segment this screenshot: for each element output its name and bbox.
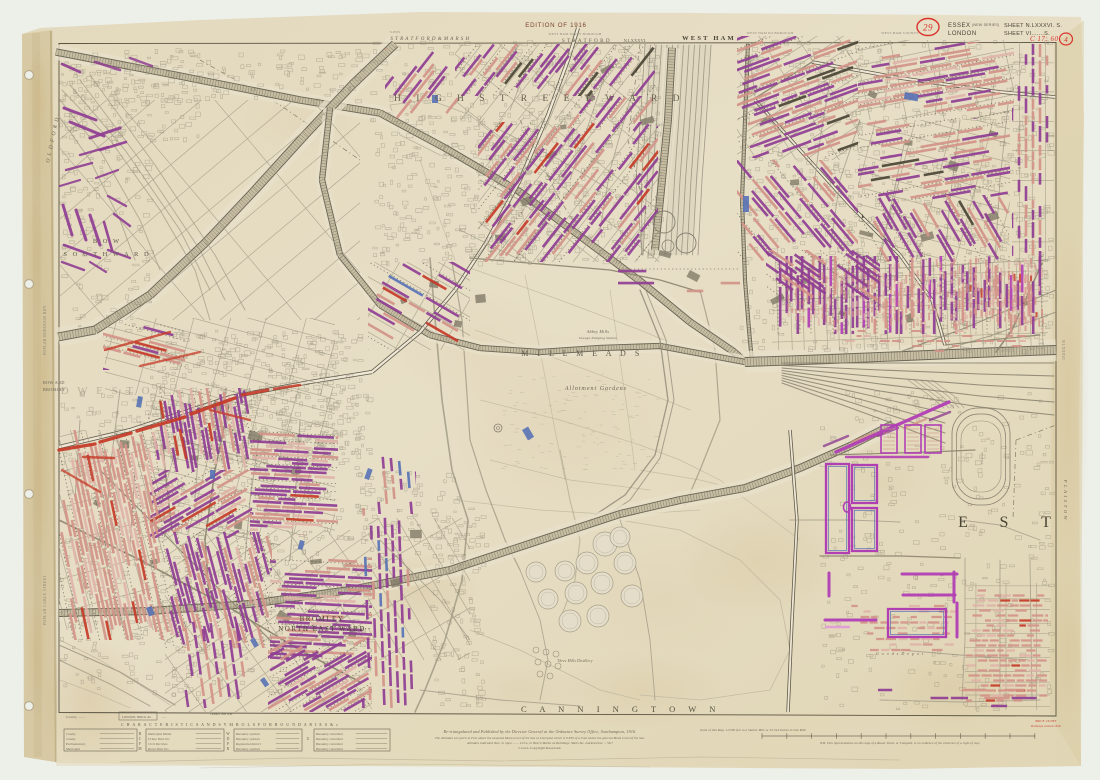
svg-text:Allotment Gardens: Allotment Gardens — [564, 386, 627, 392]
svg-text:PRICE 1/6 NET: PRICE 1/6 NET — [1036, 719, 1057, 723]
svg-text:Boundary coincident: Boundary coincident — [316, 732, 343, 736]
svg-text:S O U T H W A R D: S O U T H W A R D — [63, 251, 150, 258]
svg-text:Rural Districts: Rural Districts — [147, 747, 169, 751]
svg-text:Three Mills Distillery: Three Mills Distillery — [557, 659, 593, 663]
svg-text:Railways revised 1916: Railways revised 1916 — [1031, 724, 1061, 728]
svg-text:WEST HAM COUNTY: WEST HAM COUNTY — [881, 31, 919, 35]
svg-text:P L A I S T O W: P L A I S T O W — [1063, 479, 1068, 521]
svg-text:Civil Parishes: Civil Parishes — [148, 742, 168, 746]
svg-text:POPLAR CABLE STREET: POPLAR CABLE STREET — [43, 575, 47, 625]
svg-text:N.LXXXVI.: N.LXXXVI. — [624, 38, 647, 43]
svg-text:Boundary coincident: Boundary coincident — [316, 737, 343, 741]
svg-text:EDITION OF 1916: EDITION OF 1916 — [525, 22, 586, 29]
svg-text:D W E S T O N: D W E S T O N — [61, 385, 169, 397]
svg-text:B O W: B O W — [93, 238, 121, 245]
svg-text:29: 29 — [923, 23, 933, 33]
svg-text:S T R A T F O R D: S T R A T F O R D — [562, 38, 610, 44]
svg-text:County .......: County ....... — [66, 715, 86, 719]
svg-text:....: .... — [162, 715, 166, 719]
svg-text:Municipal Wards: Municipal Wards — [147, 732, 172, 736]
svg-text:S: S — [1000, 514, 1009, 531]
svg-text:NORTH EAST WARD: NORTH EAST WARD — [278, 625, 366, 633]
svg-text:H I G H S T R E E T W A R: H I G H S T R E E T W A R D — [394, 94, 686, 104]
svg-text:WEST HAM PARLY BOROUGH: WEST HAM PARLY BOROUGH — [548, 32, 602, 36]
svg-text:(NEW SERIES): (NEW SERIES) — [972, 23, 999, 27]
svg-text:Boundary symbols: Boundary symbols — [236, 747, 261, 751]
svg-text:M I L L M E A D S: M I L L M E A D S — [521, 349, 643, 358]
svg-text:Regimental district: Regimental district — [235, 742, 261, 746]
svg-text:Boundary symbols: Boundary symbols — [236, 737, 261, 741]
svg-text:S T R A T F O R D & M A R: S T R A T F O R D & M A R S H — [390, 37, 469, 42]
svg-text:4: 4 — [1064, 36, 1068, 44]
svg-text:G o o d s D e p o t: G o o d s D e p o t — [876, 651, 924, 656]
svg-text:Parliamentary: Parliamentary — [65, 742, 86, 746]
svg-text:Stadium: Stadium — [980, 451, 984, 464]
svg-text:BROMLEY: BROMLEY — [300, 615, 345, 623]
svg-text:WEST HAM PO BOROUGH: WEST HAM PO BOROUGH — [747, 31, 794, 35]
svg-text:Abbey Mills: Abbey Mills — [586, 329, 610, 334]
svg-text:Urban Districts: Urban Districts — [148, 737, 170, 741]
svg-text:T: T — [1041, 514, 1051, 531]
svg-text:SHEET N.LXXXVI. S.: SHEET N.LXXXVI. S. — [1004, 23, 1062, 29]
svg-text:P: P — [227, 742, 229, 746]
svg-text:Boundary symbols: Boundary symbols — [236, 732, 261, 736]
svg-text:Thames Iron Wks: Thames Iron Wks — [210, 712, 233, 716]
svg-text:ESSEX: ESSEX — [948, 23, 971, 29]
svg-text:C A N N I N G T O W N: C A N N I N G T O W N — [521, 704, 721, 714]
svg-text:N LXXXVI: N LXXXVI — [1061, 340, 1065, 360]
svg-text:Boundary coincident: Boundary coincident — [316, 747, 343, 751]
svg-text:Crown Copyright Reserved.: Crown Copyright Reserved. — [518, 746, 561, 750]
svg-text:Municipal: Municipal — [65, 747, 80, 751]
svg-text:C H A R A C T E R I S T I C S: C H A R A C T E R I S T I C S A N D S Y … — [121, 722, 339, 727]
svg-text:WEST HAM: WEST HAM — [682, 35, 736, 42]
svg-text:E: E — [958, 514, 968, 531]
svg-text:Boundary coincident: Boundary coincident — [316, 742, 343, 746]
svg-text:F: F — [139, 742, 141, 746]
svg-text:POPLAR BOROUGH BDY: POPLAR BOROUGH BDY — [43, 305, 47, 355]
svg-text:S.PNS: S.PNS — [390, 30, 400, 34]
svg-text:W: W — [226, 732, 230, 736]
svg-text:County: County — [66, 732, 76, 736]
svg-text:Sewage Pumping Station: Sewage Pumping Station — [579, 336, 617, 340]
svg-text:U: U — [307, 737, 310, 741]
svg-text:D: D — [227, 737, 230, 741]
svg-text:County: County — [66, 737, 76, 741]
svg-text:LONDON: LONDON — [948, 31, 977, 37]
svg-text:The Altitudes are given in Fee: The Altitudes are given in Feet above th… — [435, 736, 645, 740]
svg-text:C 17: 60: C 17: 60 — [1030, 35, 1059, 43]
